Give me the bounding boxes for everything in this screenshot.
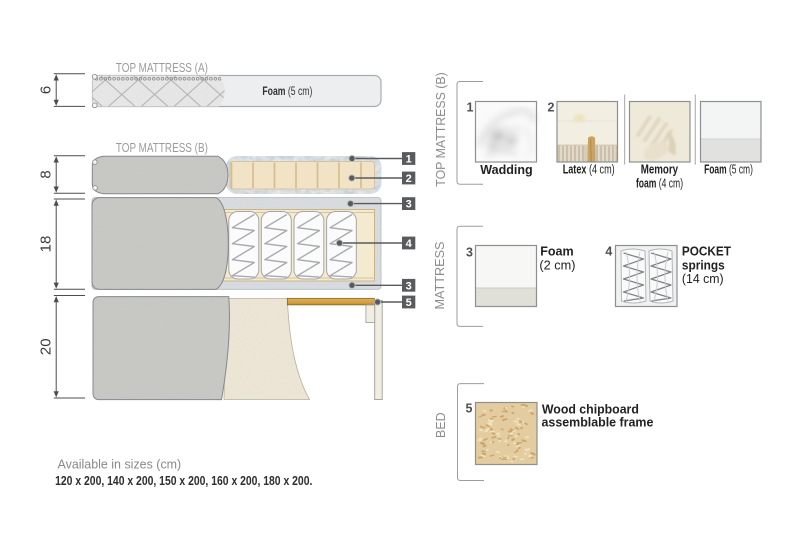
svg-text:20: 20 [37, 338, 54, 355]
svg-text:Latex (4 cm): Latex (4 cm) [563, 163, 615, 177]
svg-text:3: 3 [406, 199, 412, 211]
svg-text:120 x 200, 140 x 200, 150 x 20: 120 x 200, 140 x 200, 150 x 200, 160 x 2… [55, 474, 312, 488]
svg-text:6: 6 [37, 86, 54, 94]
svg-text:POCKET: POCKET [682, 243, 731, 258]
svg-text:5: 5 [406, 297, 412, 309]
svg-text:Memory: Memory [641, 163, 678, 177]
svg-text:2: 2 [406, 173, 412, 185]
svg-text:Wadding: Wadding [480, 162, 532, 177]
svg-text:2: 2 [548, 101, 555, 115]
svg-text:18: 18 [37, 236, 54, 253]
svg-text:Foam (5 cm): Foam (5 cm) [704, 163, 753, 177]
svg-text:Foam: Foam [540, 243, 573, 258]
svg-text:4: 4 [605, 245, 612, 259]
svg-text:BED: BED [433, 412, 448, 438]
svg-text:8: 8 [37, 170, 54, 178]
svg-text:Available in sizes (cm): Available in sizes (cm) [58, 458, 182, 472]
svg-text:TOP MATTRESS (A): TOP MATTRESS (A) [116, 60, 208, 75]
svg-text:(14 cm): (14 cm) [682, 271, 724, 286]
svg-text:(2 cm): (2 cm) [539, 257, 575, 272]
svg-text:4: 4 [406, 238, 413, 250]
svg-text:springs: springs [682, 257, 725, 272]
svg-text:Foam (5 cm): Foam (5 cm) [262, 84, 312, 98]
svg-text:MATTRESS: MATTRESS [432, 241, 447, 309]
svg-text:5: 5 [466, 402, 473, 416]
svg-text:3: 3 [406, 280, 412, 292]
svg-text:TOP MATTRESS (B): TOP MATTRESS (B) [116, 140, 208, 155]
svg-text:1: 1 [406, 154, 412, 166]
svg-text:TOP MATTRESS (B): TOP MATTRESS (B) [433, 72, 448, 187]
svg-text:3: 3 [466, 246, 473, 260]
svg-text:1: 1 [467, 101, 474, 115]
svg-text:foam (4 cm): foam (4 cm) [636, 176, 683, 190]
svg-text:assemblable frame: assemblable frame [542, 414, 654, 429]
